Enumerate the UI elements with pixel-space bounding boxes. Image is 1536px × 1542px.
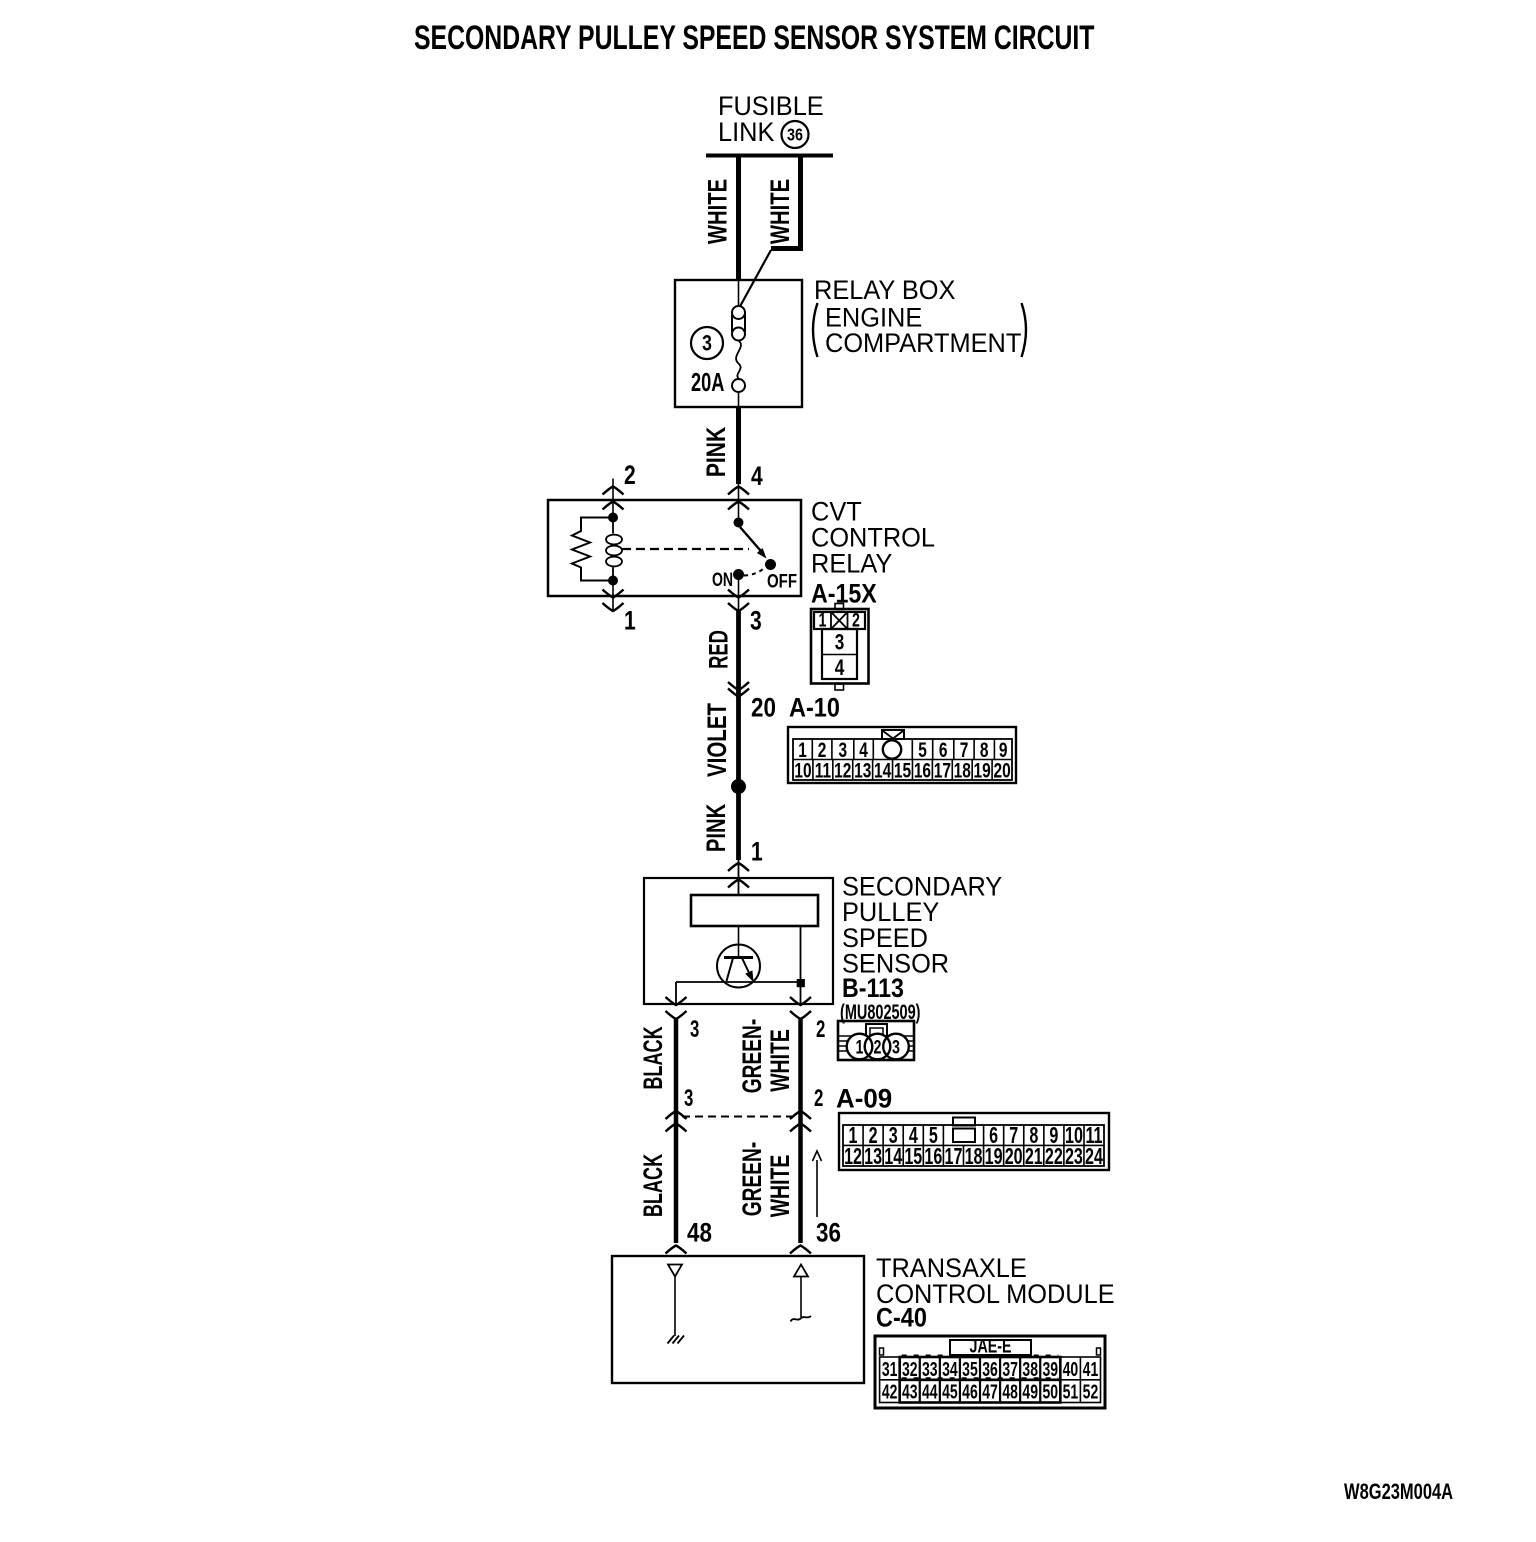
svg-text:42: 42 <box>882 1380 898 1403</box>
svg-text:4: 4 <box>751 462 763 492</box>
svg-text:45: 45 <box>942 1380 958 1403</box>
svg-text:16: 16 <box>914 758 931 782</box>
svg-text:37: 37 <box>1002 1357 1018 1380</box>
svg-text:46: 46 <box>962 1380 978 1403</box>
svg-text:3: 3 <box>690 1016 699 1043</box>
svg-text:24: 24 <box>1085 1144 1103 1169</box>
svg-text:20: 20 <box>1005 1144 1023 1169</box>
svg-text:LINK: LINK <box>718 116 775 147</box>
svg-text:23: 23 <box>1065 1144 1083 1169</box>
svg-text:34: 34 <box>942 1357 958 1380</box>
svg-text:GREEN-: GREEN- <box>737 1142 767 1217</box>
svg-text:COMPARTMENT: COMPARTMENT <box>825 327 1021 358</box>
svg-text:A-10: A-10 <box>789 693 840 723</box>
svg-text:A-09: A-09 <box>836 1083 892 1114</box>
svg-text:48: 48 <box>1002 1380 1018 1403</box>
svg-text:20: 20 <box>751 694 776 723</box>
svg-text:15: 15 <box>904 1144 922 1169</box>
svg-text:B-113: B-113 <box>842 973 904 1003</box>
svg-text:BLACK: BLACK <box>638 1026 669 1090</box>
svg-text:14: 14 <box>884 1144 902 1169</box>
svg-text:3: 3 <box>835 631 845 656</box>
svg-text:2: 2 <box>814 1085 823 1112</box>
svg-text:13: 13 <box>854 758 871 782</box>
svg-text:12: 12 <box>834 758 851 782</box>
svg-text:48: 48 <box>687 1218 712 1247</box>
svg-text:PINK: PINK <box>701 803 732 852</box>
svg-text:18: 18 <box>965 1144 983 1169</box>
svg-text:35: 35 <box>962 1357 978 1380</box>
svg-text:33: 33 <box>922 1357 938 1380</box>
svg-text:52: 52 <box>1083 1380 1099 1403</box>
svg-text:43: 43 <box>902 1380 918 1403</box>
svg-text:3: 3 <box>684 1085 693 1112</box>
svg-text:36: 36 <box>982 1357 998 1380</box>
svg-text:36: 36 <box>816 1218 841 1247</box>
svg-text:21: 21 <box>1025 1144 1043 1169</box>
svg-text:47: 47 <box>982 1380 998 1403</box>
svg-text:41: 41 <box>1083 1357 1099 1380</box>
svg-text:51: 51 <box>1063 1380 1079 1403</box>
svg-text:16: 16 <box>924 1144 942 1169</box>
svg-text:WHITE: WHITE <box>765 1155 795 1218</box>
svg-text:17: 17 <box>944 1144 962 1169</box>
svg-text:50: 50 <box>1042 1380 1058 1403</box>
svg-text:JAE-E: JAE-E <box>970 1336 1012 1357</box>
svg-text:1: 1 <box>624 606 636 636</box>
svg-text:20A: 20A <box>691 368 724 397</box>
svg-text:22: 22 <box>1045 1144 1063 1169</box>
svg-text:10: 10 <box>794 758 811 782</box>
svg-text:19: 19 <box>974 758 991 782</box>
svg-text:20: 20 <box>993 758 1010 782</box>
svg-text:39: 39 <box>1042 1357 1058 1380</box>
svg-text:RELAY BOX: RELAY BOX <box>814 274 955 305</box>
svg-text:OFF: OFF <box>767 571 797 592</box>
svg-text:3: 3 <box>750 606 762 636</box>
svg-text:19: 19 <box>985 1144 1003 1169</box>
svg-text:2: 2 <box>852 610 860 631</box>
svg-text:ON: ON <box>712 569 733 591</box>
svg-text:44: 44 <box>922 1380 938 1403</box>
svg-text:36: 36 <box>787 125 803 145</box>
svg-text:3: 3 <box>702 332 712 356</box>
svg-text:WHITE: WHITE <box>703 179 734 244</box>
svg-text:31: 31 <box>882 1357 898 1380</box>
svg-text:W8G23M004A: W8G23M004A <box>1344 1480 1453 1505</box>
svg-text:12: 12 <box>844 1144 862 1169</box>
svg-text:RED: RED <box>703 630 733 669</box>
svg-text:WHITE: WHITE <box>765 179 796 244</box>
svg-text:2: 2 <box>624 461 636 491</box>
svg-text:15: 15 <box>894 758 911 782</box>
svg-text:C-40: C-40 <box>876 1303 927 1333</box>
svg-text:38: 38 <box>1022 1357 1038 1380</box>
svg-text:PINK: PINK <box>702 426 732 477</box>
svg-text:1: 1 <box>751 837 763 867</box>
svg-text:11: 11 <box>815 758 831 782</box>
svg-text:1: 1 <box>819 610 827 631</box>
svg-text:3: 3 <box>892 1037 900 1058</box>
svg-text:14: 14 <box>874 758 892 782</box>
svg-text:2: 2 <box>816 1016 825 1043</box>
svg-text:2: 2 <box>874 1037 882 1058</box>
svg-text:4: 4 <box>835 656 845 681</box>
svg-text:VIOLET: VIOLET <box>702 703 732 777</box>
svg-text:GREEN-: GREEN- <box>737 1019 767 1094</box>
svg-text:40: 40 <box>1063 1357 1079 1380</box>
svg-text:1: 1 <box>856 1037 864 1058</box>
svg-text:BLACK: BLACK <box>637 1154 668 1218</box>
svg-text:17: 17 <box>934 758 951 782</box>
svg-text:32: 32 <box>902 1357 918 1380</box>
svg-text:RELAY: RELAY <box>811 548 892 579</box>
svg-text:WHITE: WHITE <box>765 1029 795 1092</box>
svg-text:18: 18 <box>954 758 971 782</box>
svg-text:13: 13 <box>864 1144 882 1169</box>
svg-text:49: 49 <box>1022 1380 1038 1403</box>
svg-text:SECONDARY PULLEY SPEED SENSOR: SECONDARY PULLEY SPEED SENSOR SYSTEM CIR… <box>414 19 1094 57</box>
